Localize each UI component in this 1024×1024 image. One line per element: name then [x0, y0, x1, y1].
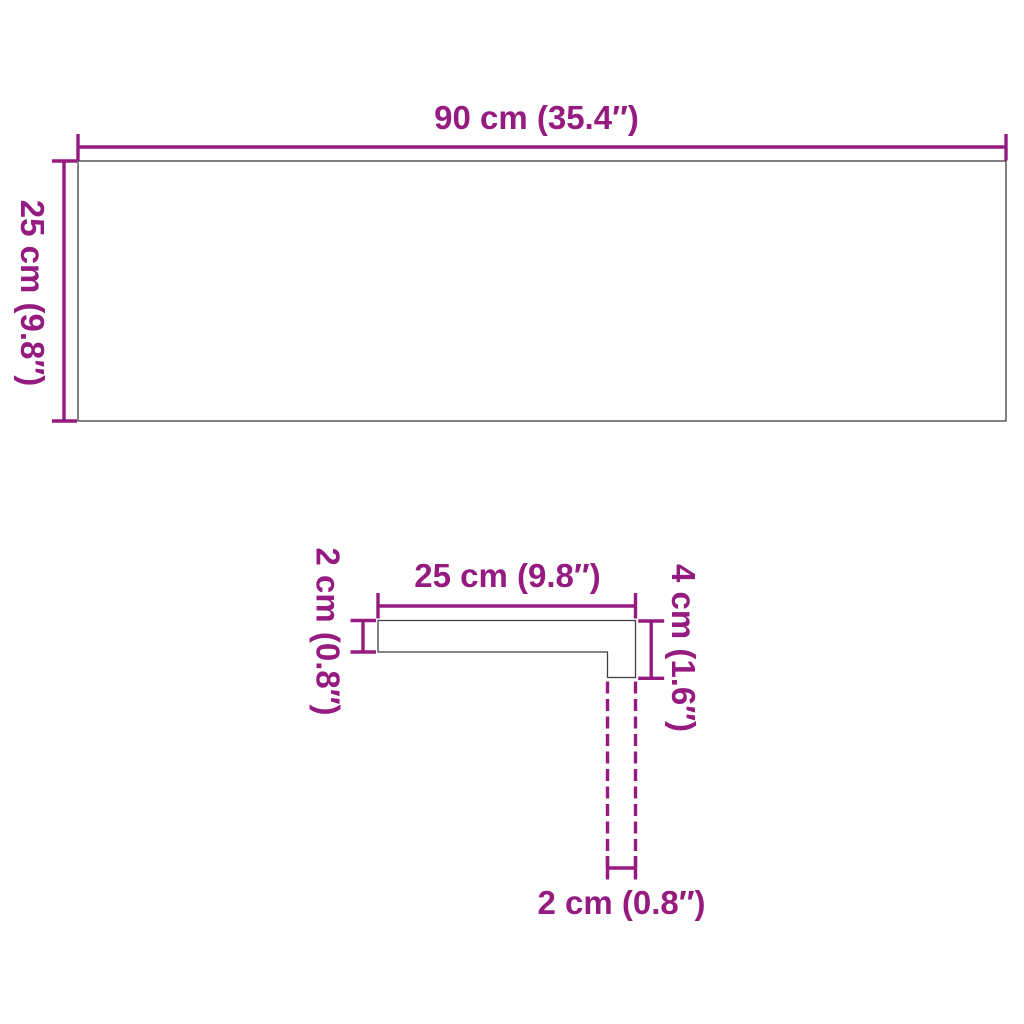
- svg-text:90 cm (35.4″): 90 cm (35.4″): [434, 99, 639, 136]
- svg-text:2 cm (0.8″): 2 cm (0.8″): [537, 884, 705, 921]
- svg-text:2 cm (0.8″): 2 cm (0.8″): [310, 547, 347, 715]
- svg-text:25 cm (9.8″): 25 cm (9.8″): [414, 557, 600, 594]
- svg-text:4 cm (1.6″): 4 cm (1.6″): [665, 564, 702, 732]
- svg-text:25 cm (9.8″): 25 cm (9.8″): [14, 200, 51, 386]
